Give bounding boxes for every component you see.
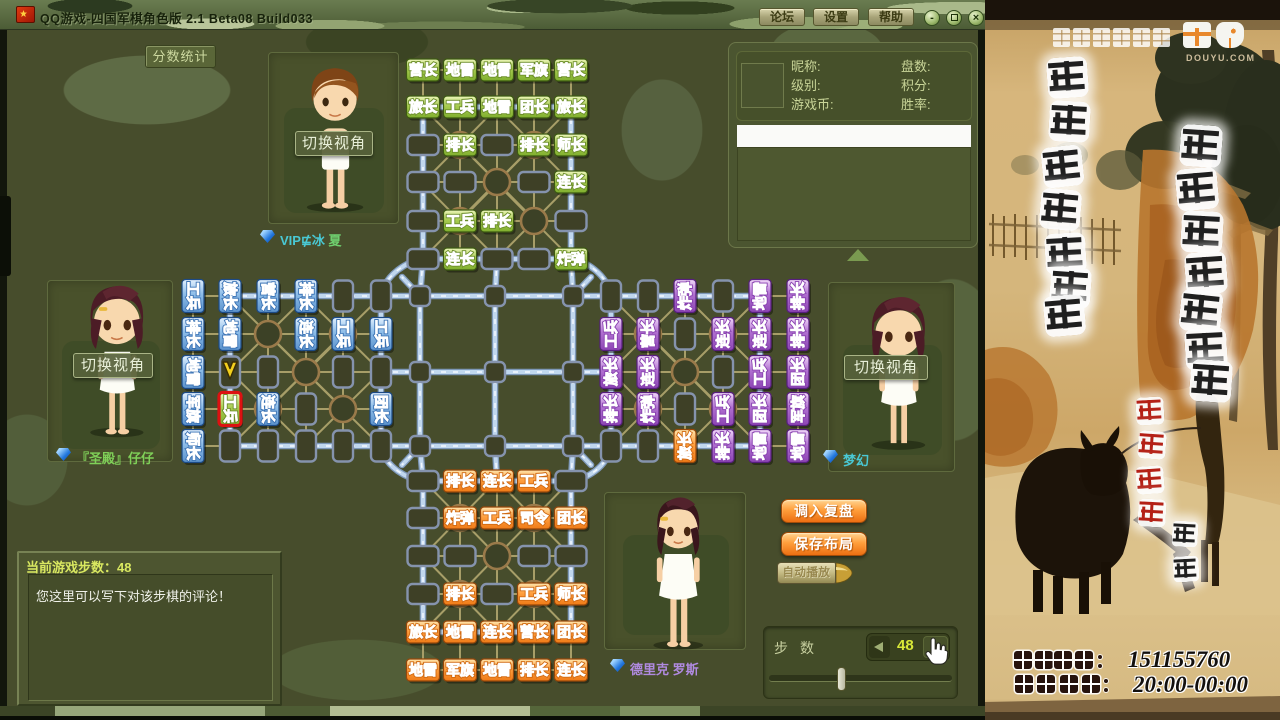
svg-text:地雷: 地雷 <box>446 624 474 640</box>
svg-text:排长: 排长 <box>520 137 549 153</box>
svg-text:排长: 排长 <box>483 213 512 229</box>
svg-text:地雷: 地雷 <box>446 62 474 78</box>
svg-text:地雷: 地雷 <box>483 99 511 115</box>
svg-text:团长: 团长 <box>520 99 549 115</box>
svg-text:工兵: 工兵 <box>603 320 619 348</box>
svg-text:旅长: 旅长 <box>409 624 438 640</box>
svg-text:工兵: 工兵 <box>335 320 351 348</box>
svg-text:旅长: 旅长 <box>222 282 238 311</box>
svg-text:工兵: 工兵 <box>715 395 731 423</box>
svg-text:军旗: 军旗 <box>185 395 201 423</box>
svg-text:旅长: 旅长 <box>677 431 693 460</box>
svg-text:团长: 团长 <box>557 624 586 640</box>
svg-text:地雷: 地雷 <box>185 358 201 386</box>
svg-text:排长: 排长 <box>790 281 806 310</box>
svg-text:地雷: 地雷 <box>222 320 238 348</box>
svg-text:地雷: 地雷 <box>409 662 437 678</box>
svg-text:工兵: 工兵 <box>222 395 238 423</box>
svg-text:旅长: 旅长 <box>603 357 619 386</box>
svg-text:连长: 连长 <box>298 320 314 349</box>
svg-text:排长: 排长 <box>790 319 806 348</box>
svg-text:连长: 连长 <box>483 624 512 640</box>
svg-text:炸弹: 炸弹 <box>640 395 656 423</box>
svg-text:地雷: 地雷 <box>752 432 768 460</box>
svg-text:地雷: 地雷 <box>790 432 806 460</box>
svg-text:工兵: 工兵 <box>752 358 768 386</box>
svg-text:炸弹: 炸弹 <box>446 510 474 526</box>
svg-text:旅长: 旅长 <box>409 99 438 115</box>
svg-text:连长: 连长 <box>715 319 731 348</box>
svg-text:工兵: 工兵 <box>373 320 389 348</box>
svg-text:师长: 师长 <box>557 586 586 602</box>
svg-text:排长: 排长 <box>520 662 549 678</box>
svg-text:工兵: 工兵 <box>185 282 201 310</box>
svg-text:工兵: 工兵 <box>446 99 474 115</box>
svg-text:连长: 连长 <box>260 395 276 424</box>
svg-text:工兵: 工兵 <box>520 586 548 602</box>
svg-text:军旗: 军旗 <box>446 662 474 678</box>
svg-text:营长: 营长 <box>557 62 586 78</box>
svg-text:排长: 排长 <box>185 320 201 349</box>
svg-text:团长: 团长 <box>752 394 768 423</box>
svg-text:排长: 排长 <box>446 137 475 153</box>
svg-text:旅长: 旅长 <box>557 99 586 115</box>
svg-text:工兵: 工兵 <box>520 473 548 489</box>
svg-text:地雷: 地雷 <box>483 62 511 78</box>
svg-text:排长: 排长 <box>446 586 475 602</box>
svg-text:地雷: 地雷 <box>483 662 511 678</box>
svg-text:连长: 连长 <box>557 174 586 190</box>
svg-text:排长: 排长 <box>446 473 475 489</box>
svg-text:营长: 营长 <box>640 319 656 348</box>
svg-text:连长: 连长 <box>446 251 475 267</box>
svg-text:工兵: 工兵 <box>446 213 474 229</box>
svg-text:排长: 排长 <box>298 282 314 311</box>
svg-text:团长: 团长 <box>557 510 586 526</box>
svg-text:营长: 营长 <box>520 624 549 640</box>
svg-text:连长: 连长 <box>557 662 586 678</box>
svg-text:营长: 营长 <box>409 62 438 78</box>
svg-text:军旗: 军旗 <box>520 62 548 78</box>
svg-text:连长: 连长 <box>483 473 512 489</box>
svg-text:工兵: 工兵 <box>483 510 511 526</box>
svg-text:司令: 司令 <box>520 510 549 526</box>
svg-text:炸弹: 炸弹 <box>677 282 693 310</box>
svg-text:地雷: 地雷 <box>752 282 768 310</box>
svg-text:排长: 排长 <box>715 431 731 460</box>
svg-text:师长: 师长 <box>557 137 586 153</box>
svg-text:师长: 师长 <box>185 432 201 461</box>
svg-text:排长: 排长 <box>603 394 619 423</box>
svg-text:军旗: 军旗 <box>790 395 806 423</box>
svg-text:营长: 营长 <box>260 282 276 311</box>
svg-text:团长: 团长 <box>373 395 389 424</box>
svg-text:连长: 连长 <box>752 319 768 348</box>
svg-text:炸弹: 炸弹 <box>557 251 585 267</box>
svg-text:连长: 连长 <box>640 357 656 386</box>
svg-text:团长: 团长 <box>790 357 806 386</box>
